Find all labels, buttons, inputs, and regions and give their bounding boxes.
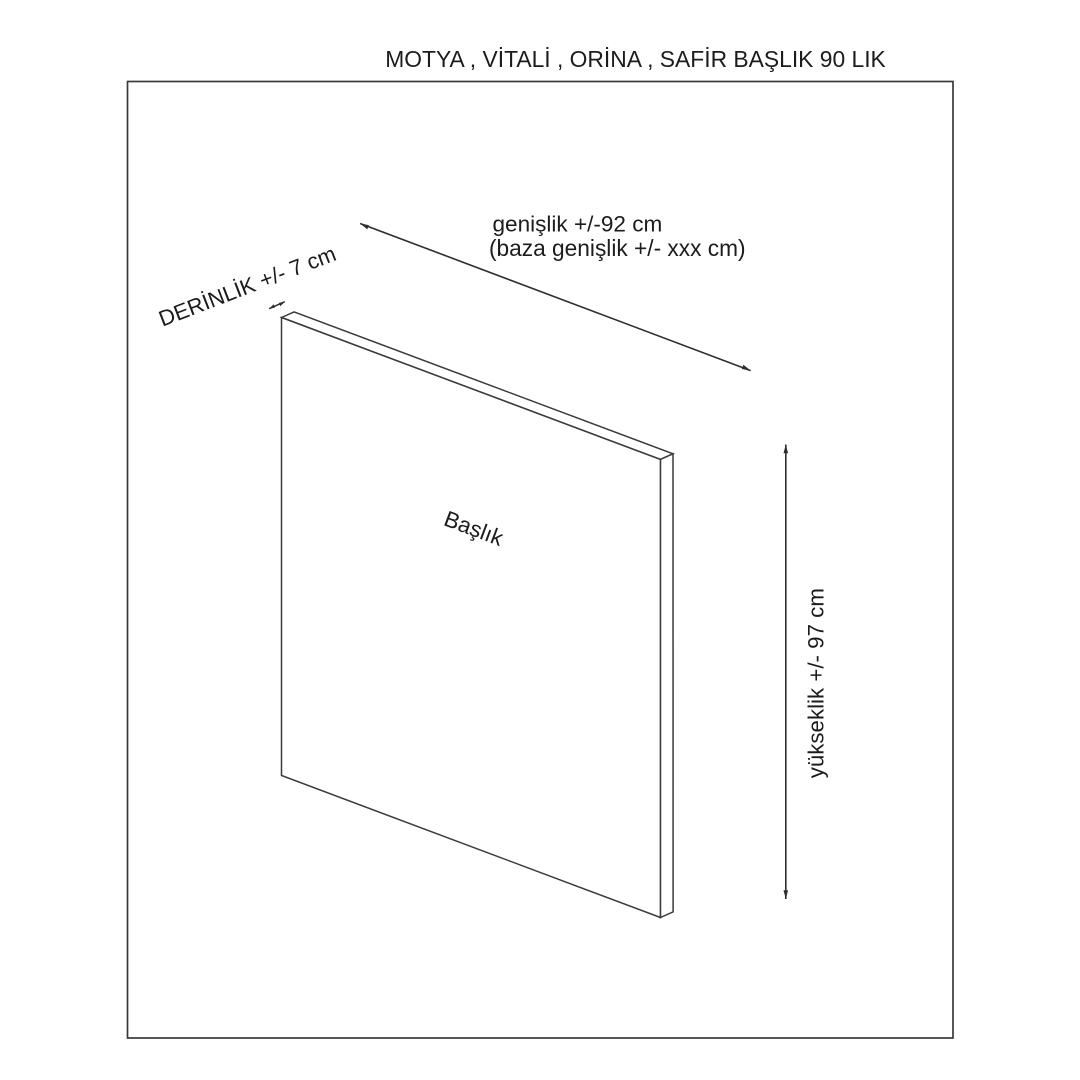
svg-text:yükseklik +/- 97 cm: yükseklik +/- 97 cm [804, 588, 829, 778]
svg-text:genişlik +/-92 cm: genişlik +/-92 cm [493, 212, 663, 237]
svg-text:(baza genişlik +/- xxx cm): (baza genişlik +/- xxx cm) [489, 235, 746, 261]
svg-text:MOTYA , VİTALİ , ORİNA , SAFİR: MOTYA , VİTALİ , ORİNA , SAFİR BAŞLIK 90… [385, 46, 886, 72]
